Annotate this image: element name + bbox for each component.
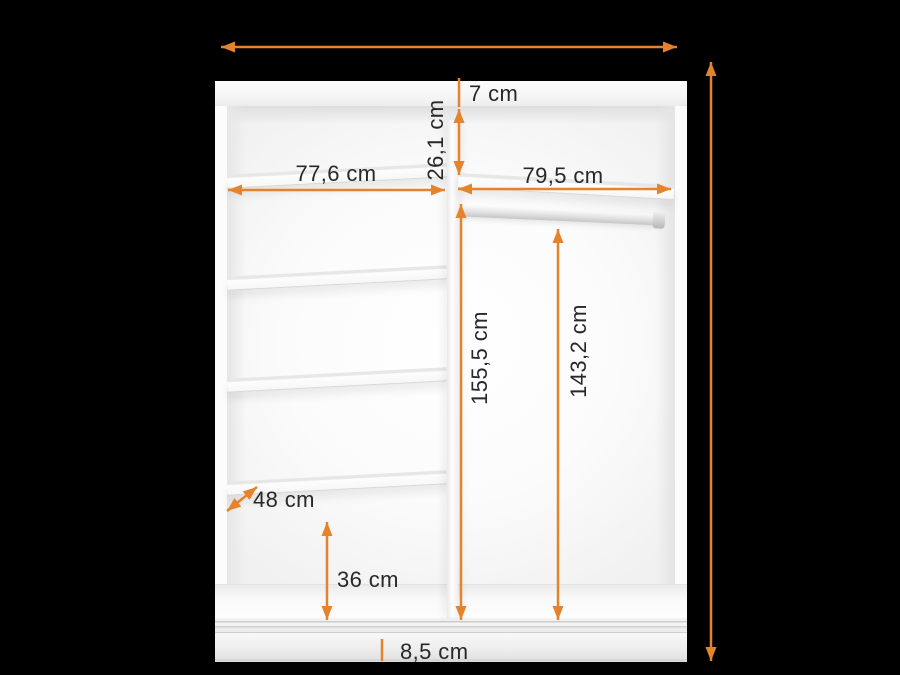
rail-end-bracket — [653, 211, 666, 229]
shelf — [227, 265, 447, 290]
dimension-label-plinth-height: 8,5 cm — [400, 639, 468, 665]
center-divider-panel — [447, 120, 458, 618]
dimension-label-bottom-shelf-clearance: 36 cm — [337, 567, 399, 593]
shelf — [227, 367, 447, 392]
dimension-label-right-section-height: 155,5 cm — [467, 311, 493, 405]
diagram-stage: 7 cm 26,1 cm 77,6 cm 79,5 cm 155,5 cm 14… — [0, 0, 900, 675]
dimension-label-top-panel-thickness: 7 cm — [469, 81, 518, 107]
wardrobe-top-panel — [215, 81, 687, 107]
dimension-label-top-shelf-clearance: 26,1 cm — [423, 99, 449, 180]
dimension-label-shelf-depth: 48 cm — [253, 487, 315, 513]
dimension-label-left-section-width: 77,6 cm — [295, 161, 376, 187]
dimension-label-hanging-space-height: 143,2 cm — [566, 304, 592, 398]
wardrobe-interior — [215, 106, 687, 632]
left-side-panel — [215, 106, 228, 632]
right-side-panel — [674, 106, 687, 632]
hanging-rail — [458, 205, 664, 225]
dimension-label-right-section-width: 79,5 cm — [522, 163, 603, 189]
wardrobe-body — [215, 81, 687, 662]
sliding-door-track — [215, 618, 687, 632]
